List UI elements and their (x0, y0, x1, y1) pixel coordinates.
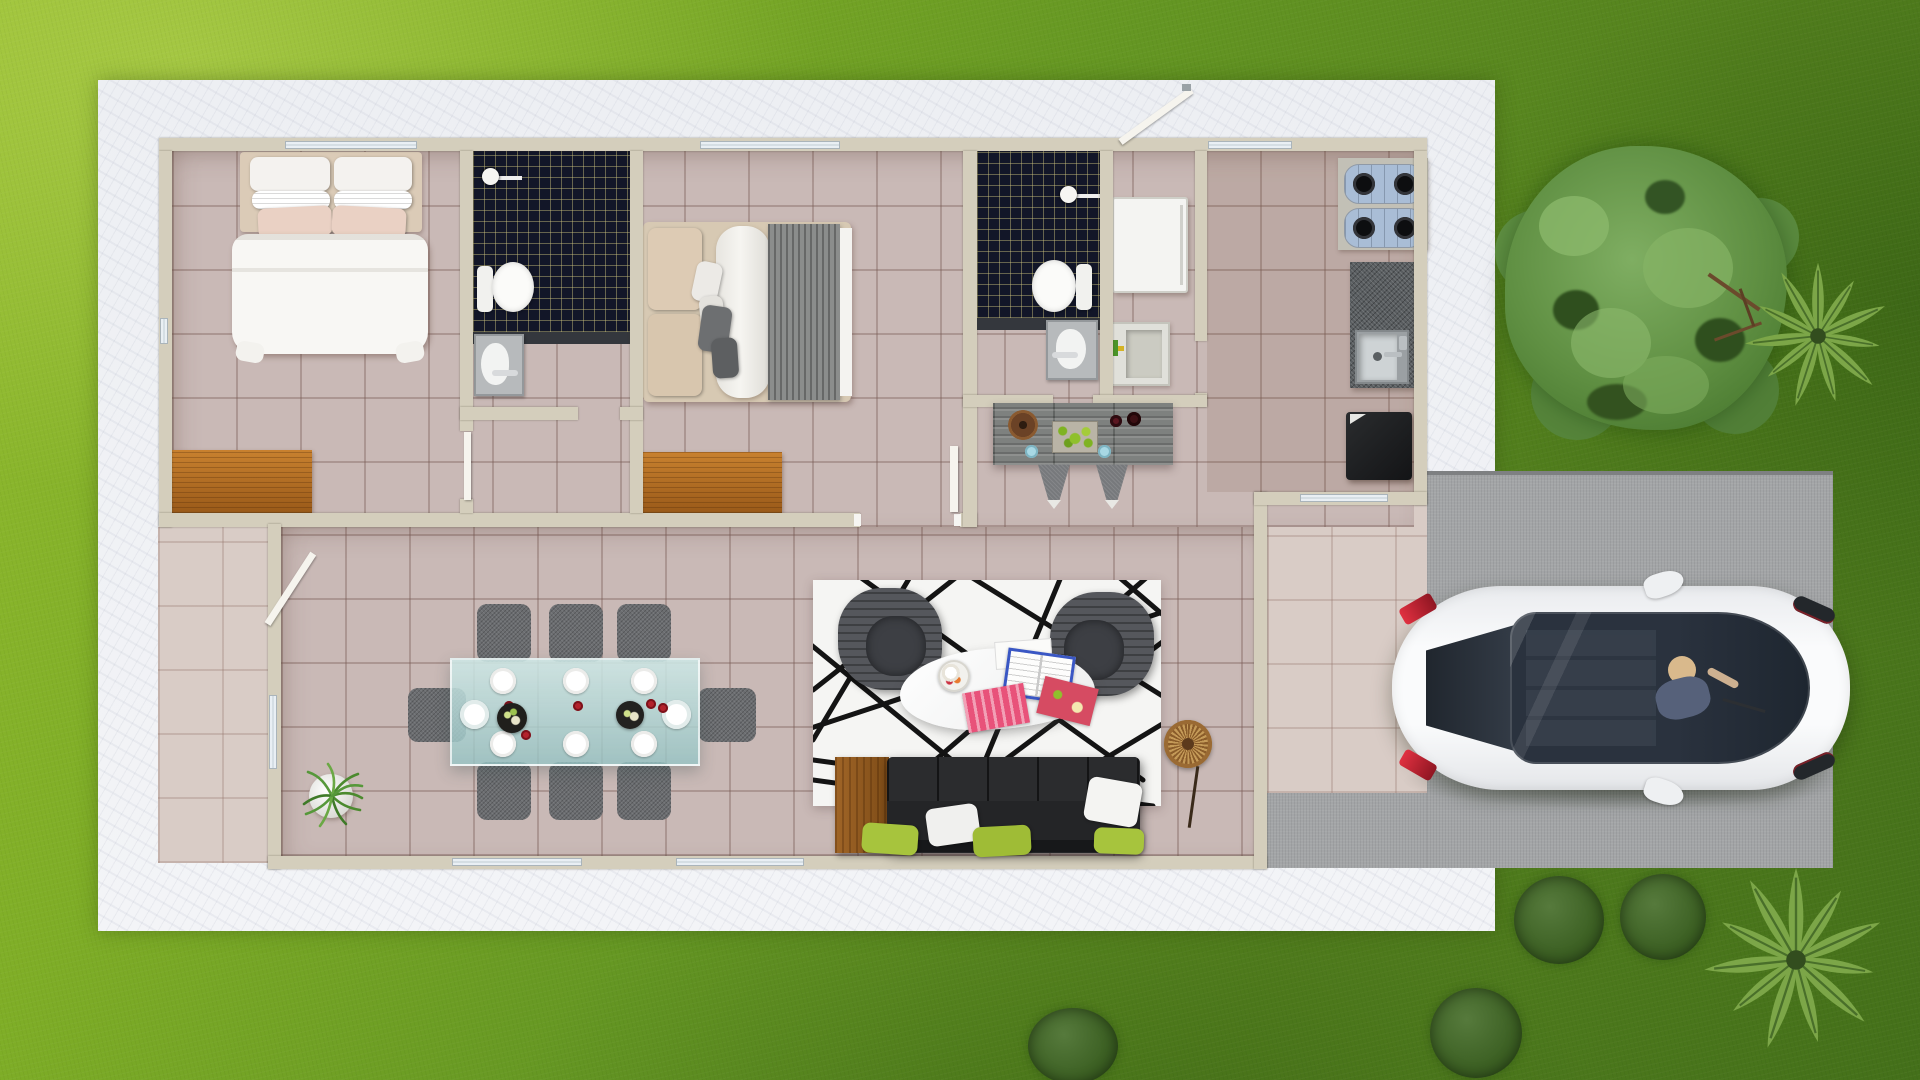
bush (1028, 1008, 1118, 1080)
window-bottom-living (676, 858, 804, 866)
wall-laundry-kitchen (1195, 151, 1207, 341)
burner-icon (1394, 217, 1416, 239)
burner-icon (1353, 173, 1375, 195)
bed-2-pillow-gray (711, 337, 740, 379)
dining-chair (698, 688, 756, 742)
sofa-pillow-green (972, 825, 1031, 858)
shower-2-head-icon (1060, 186, 1077, 203)
red-cup (658, 703, 668, 713)
dining-chair (477, 604, 531, 662)
glass-reflection (1510, 612, 1810, 764)
refrigerator (1346, 412, 1412, 480)
wall-bed1-bath1-stub (460, 499, 473, 513)
kitchen-faucet-handle (1399, 336, 1407, 350)
laundry-faucet (1113, 340, 1118, 356)
blue-cup (1098, 445, 1111, 458)
shower-1-arm (496, 176, 522, 180)
bed-2-gray-throw (768, 224, 840, 400)
kitchen-faucet (1384, 352, 1402, 357)
canopy-highlight (1539, 196, 1609, 256)
ensuite-door (464, 432, 471, 500)
wall-bath1-bed2 (630, 151, 643, 513)
bed-1-pillow (334, 157, 412, 191)
burner-icon (1353, 217, 1375, 239)
door-post (954, 514, 961, 526)
toilet-1-bowl (492, 262, 534, 312)
floor-plan-render (0, 0, 1920, 1080)
sink-2-faucet (1052, 352, 1078, 358)
wall-lower-right (1254, 492, 1267, 869)
laundry-tub-basin (1126, 330, 1162, 378)
bed-1-duvet (232, 234, 428, 354)
sofa-pillow-green (861, 822, 919, 856)
bottle (1127, 412, 1141, 426)
window-bottom-dining (452, 858, 582, 866)
window-left-upper (160, 318, 168, 344)
door-post (854, 514, 861, 526)
red-cup (646, 699, 656, 709)
window-top-kitchen (1208, 141, 1292, 149)
window-top-bedroom1 (285, 141, 417, 149)
plate-end (460, 700, 489, 729)
wall-bath2-laundry (1100, 151, 1113, 407)
burner-icon (1394, 173, 1416, 195)
bed-2-mattress-edge (840, 228, 852, 396)
red-cup (521, 730, 531, 740)
car-glass-roof (1510, 612, 1810, 764)
plate (631, 731, 657, 757)
serving-tray (497, 703, 527, 733)
toilet-1-tank (477, 266, 493, 312)
bush (1514, 876, 1604, 964)
canopy-gap (1645, 180, 1685, 214)
dining-chair (617, 762, 671, 820)
car (1392, 586, 1850, 790)
dresser-bedroom-2 (640, 452, 782, 513)
rattan-center (1182, 738, 1194, 750)
sink-2-basin (1056, 329, 1086, 369)
plate (563, 668, 589, 694)
sink-1-faucet (492, 370, 518, 376)
sink-1-basin (481, 343, 509, 385)
wall-mid (159, 513, 860, 527)
toilet-2-bowl (1032, 260, 1076, 312)
fruit-tray (1052, 421, 1098, 453)
ring-bowl (1008, 410, 1038, 440)
bush (1620, 874, 1706, 960)
sofa-pillow-green (1094, 827, 1145, 855)
window-left-lower (269, 695, 277, 769)
dining-chair (549, 604, 603, 662)
washing-machine (1112, 197, 1188, 293)
blue-cup (1025, 445, 1038, 458)
wall-bed1-bath1 (460, 151, 473, 431)
canopy-highlight (1623, 356, 1709, 414)
bed-1-pillow (250, 157, 330, 191)
armchair-left-cushion (866, 616, 926, 676)
wall-right (1414, 151, 1427, 505)
sofa-pillow-white (1083, 776, 1144, 829)
bottle (1110, 415, 1122, 427)
potted-grass-plant (296, 760, 368, 832)
dining-chair (617, 604, 671, 662)
bedroom-2-door (950, 446, 958, 512)
shower-1-head-icon (482, 168, 499, 185)
washer-door-seam (1180, 205, 1183, 285)
palm-tree-upper (1740, 258, 1896, 414)
candy-bowl (938, 660, 970, 692)
wall-bed2-bath2 (963, 151, 977, 527)
plate (490, 668, 516, 694)
sink-drain-icon (1373, 352, 1382, 361)
plate (563, 731, 589, 757)
left-patio-tiles (158, 527, 268, 863)
dining-chair (549, 762, 603, 820)
shower-2-arm (1074, 194, 1100, 198)
palm-tree-lower (1698, 862, 1894, 1058)
red-cup (573, 701, 583, 711)
serving-tray (616, 701, 644, 729)
plate (490, 731, 516, 757)
wall-bath1-bottom-stub (620, 407, 643, 420)
bush (1430, 988, 1522, 1078)
plate (631, 668, 657, 694)
wall-bath1-bottom (460, 407, 578, 420)
canopy-highlight (1643, 228, 1733, 308)
window-top-bedroom2 (700, 141, 840, 149)
canopy-gap (1695, 318, 1745, 362)
dresser-bedroom-1 (170, 450, 312, 513)
bed-2-pillow-beige (648, 314, 702, 396)
door-handle-icon (1182, 84, 1191, 91)
dining-chair (477, 762, 531, 820)
toilet-2-tank (1076, 264, 1092, 310)
window-kitchen-slider (1300, 494, 1388, 502)
